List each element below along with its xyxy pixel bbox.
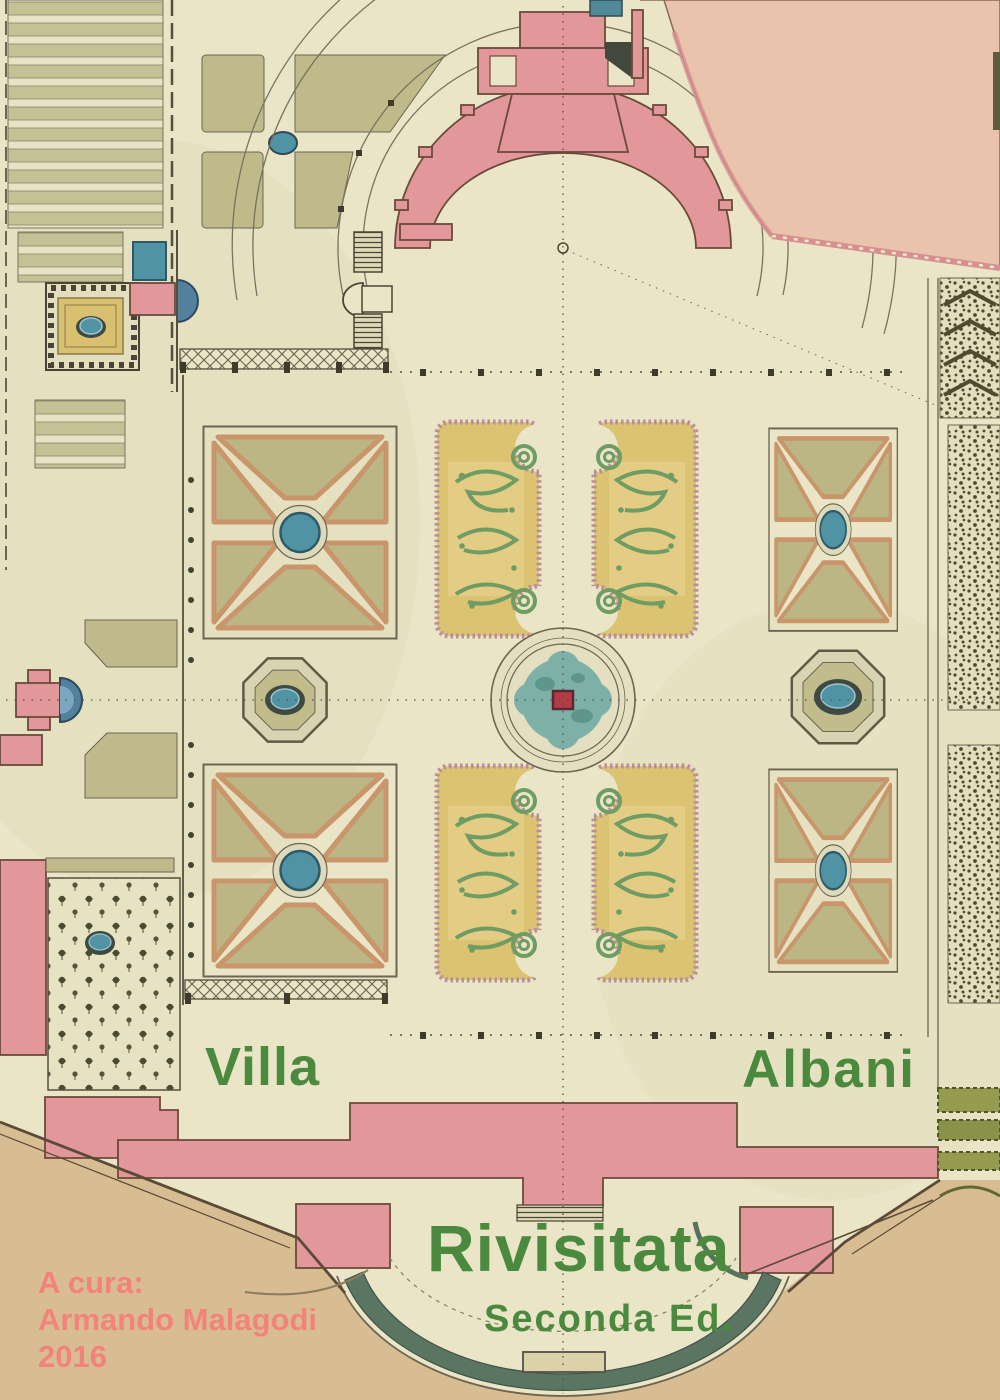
subtitle-rivisitata: Rivisitata xyxy=(427,1210,730,1286)
central-fountain xyxy=(491,628,635,772)
edition-label: Seconda Ed. xyxy=(484,1298,734,1341)
octagon-basin-left xyxy=(243,658,326,741)
book-cover: Villa Albani Rivisitata Seconda Ed. A cu… xyxy=(0,0,1000,1400)
octagon-basin-right xyxy=(792,651,884,743)
side-beds xyxy=(35,400,125,468)
credits-year: 2016 xyxy=(38,1338,317,1375)
credits-name: Armando Malagodi xyxy=(38,1301,317,1338)
credits-label: A cura: xyxy=(38,1264,317,1301)
title-word-villa: Villa xyxy=(205,1036,320,1098)
credits-block: A cura: Armando Malagodi 2016 xyxy=(38,1264,317,1375)
villa-plan-drawing xyxy=(0,0,1000,1400)
quincunx-grove xyxy=(0,858,180,1090)
title-word-albani: Albani xyxy=(742,1039,916,1100)
